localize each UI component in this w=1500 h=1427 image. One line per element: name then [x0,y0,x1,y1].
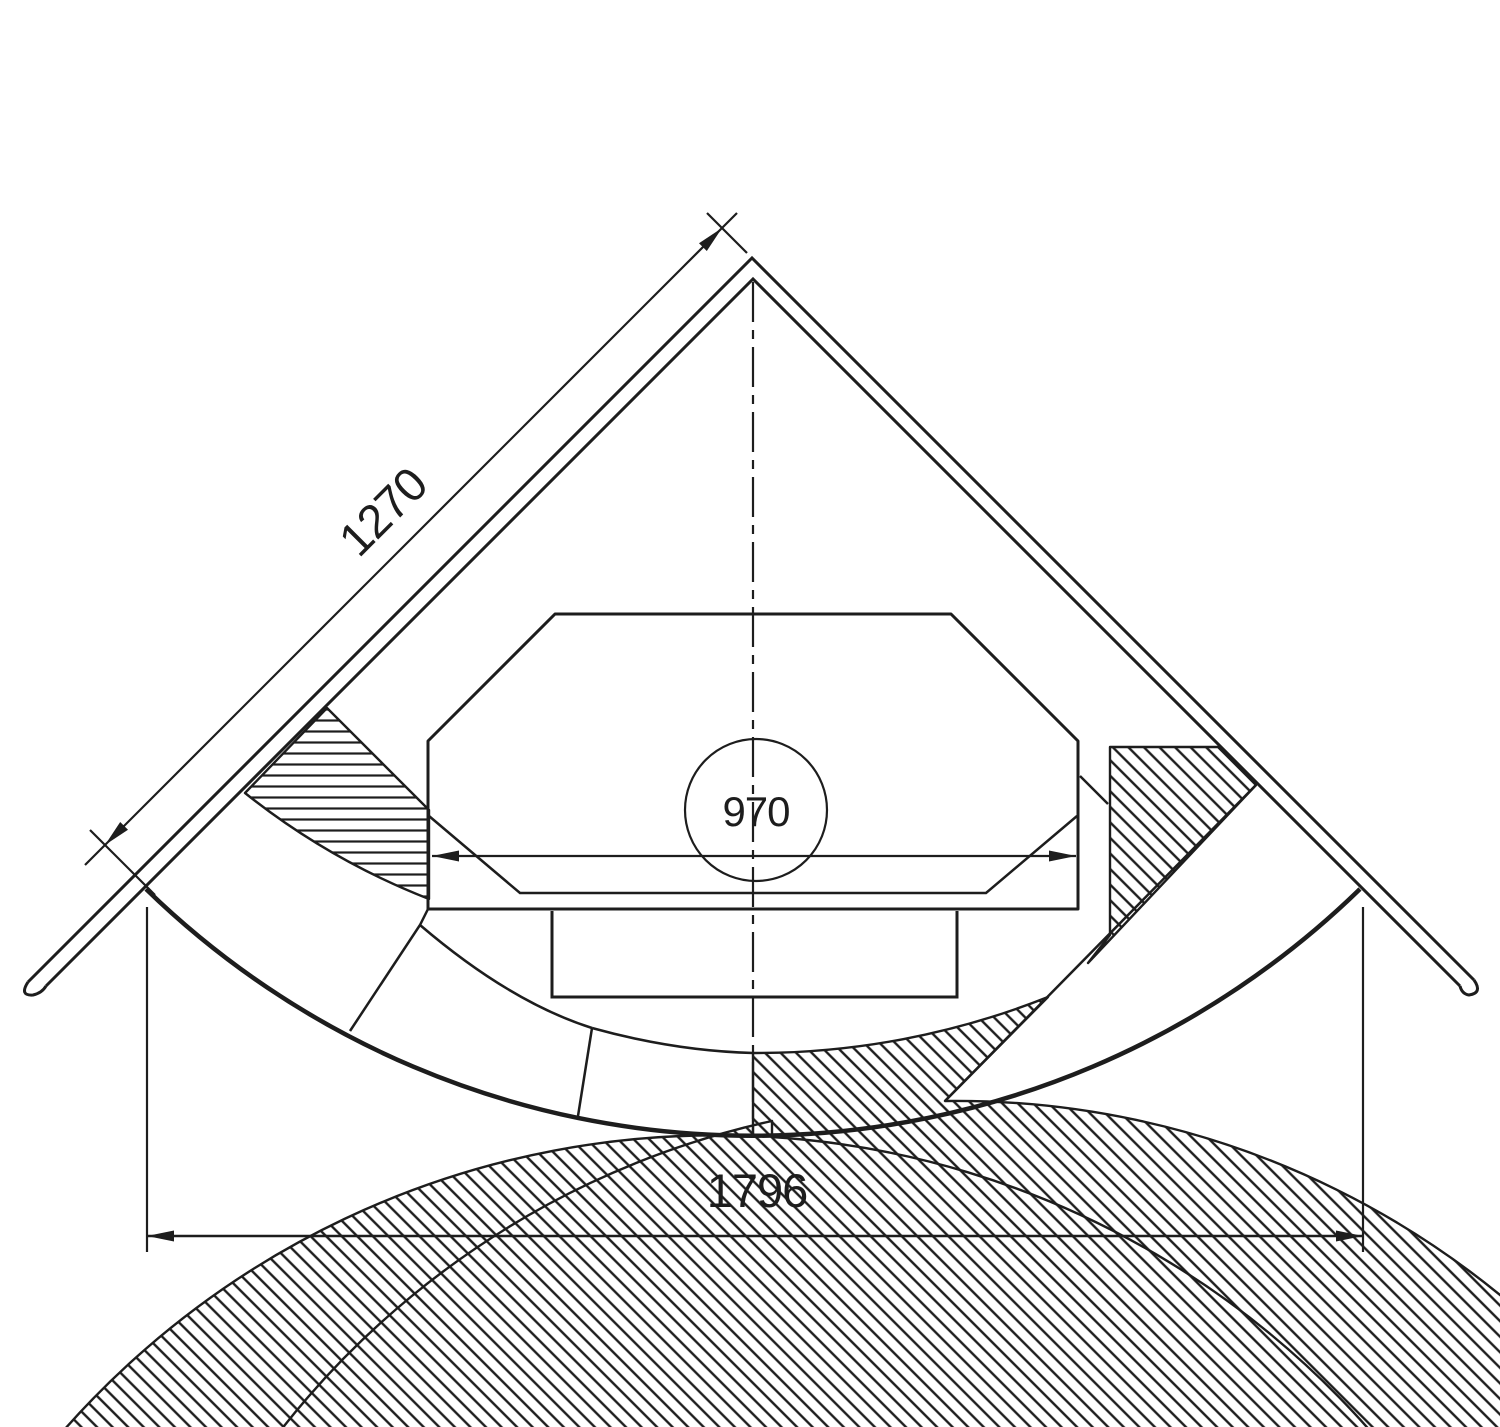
left-segment-divider-b [578,1028,592,1116]
technical-drawing-canvas: 1270 970 1796 [0,0,1500,1427]
left-segment-divider-a [350,909,428,1031]
dim-1796-arrow-left [147,1231,174,1242]
left-segment-top-edge [420,925,592,1028]
dim-1270-line [85,213,737,865]
center-segment-top-edge [592,1028,753,1053]
corner-walls [24,258,1477,995]
wall-left-end-cap [24,982,46,995]
dim-970-arrow-right [1049,851,1076,862]
wall-outer-line [28,258,1474,982]
base-rectangle [552,911,957,997]
right-band-boundary [945,785,1256,1101]
corner-stove-plan-drawing: 1270 970 1796 [0,0,1500,1427]
dimension-label-front-width: 970 [722,788,789,835]
dimension-label-overall-width: 1796 [707,1164,808,1217]
dim-1270-extension-top [707,213,747,253]
dim-970-arrow-left [432,851,459,862]
dimension-label-wall-side: 1270 [328,457,437,566]
dimension-1270 [85,213,747,895]
right-shelf-connector [1080,776,1108,804]
wall-right-end-cap [1460,980,1478,995]
dim-1270-extension-bottom [90,830,155,895]
